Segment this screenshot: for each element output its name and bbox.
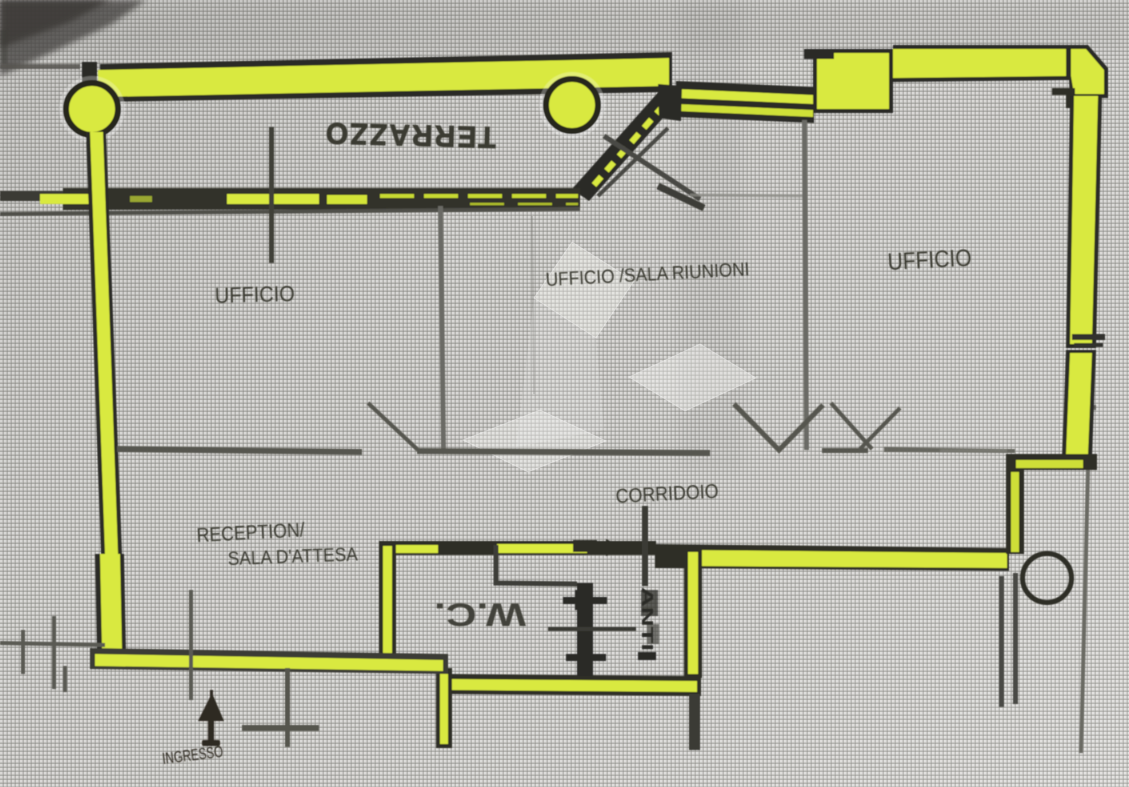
svg-text:ANTI: ANTI — [638, 587, 655, 651]
svg-text:TERRAZZO: TERRAZZO — [324, 116, 497, 153]
svg-text:W.C.: W.C. — [434, 597, 526, 633]
svg-text:UFFICIO: UFFICIO — [214, 281, 295, 308]
svg-text:UFFICIO: UFFICIO — [887, 245, 972, 276]
